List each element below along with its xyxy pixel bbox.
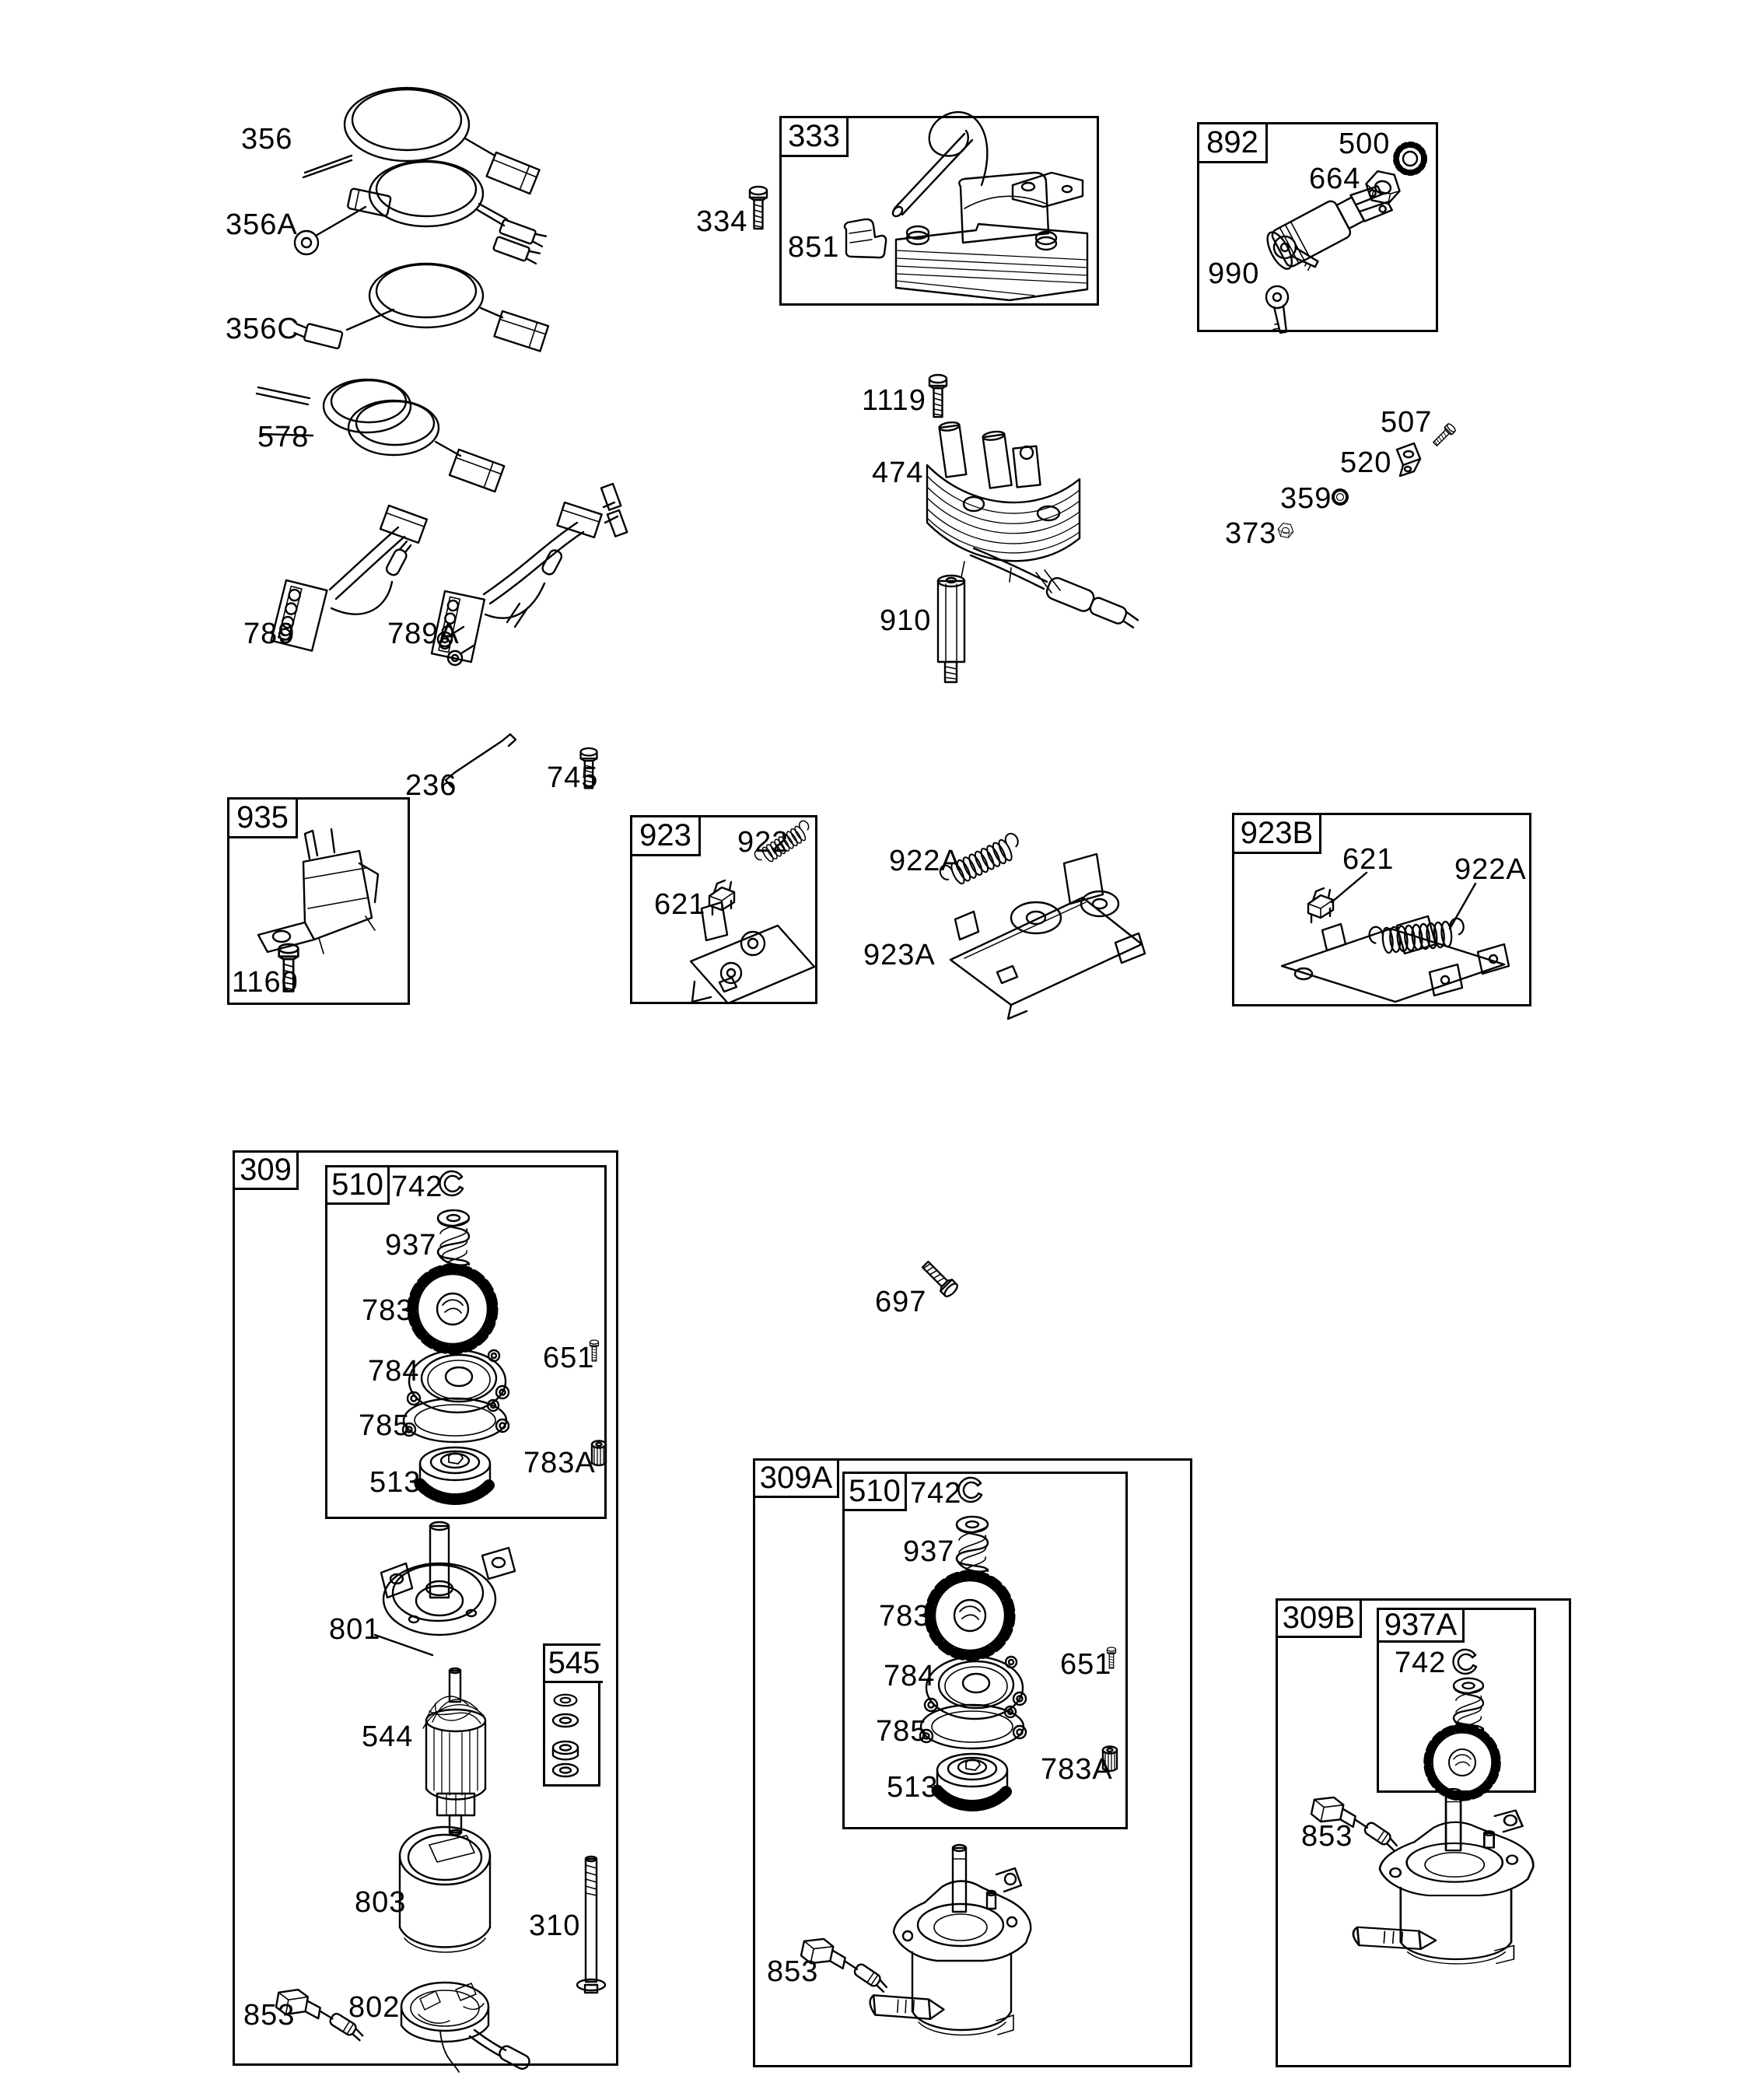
part-label-853-3: 853 — [1301, 1820, 1353, 1853]
part-label-1160: 1160 — [232, 966, 299, 999]
part-label-789: 789 — [243, 618, 295, 651]
control-bracket-art-923A — [950, 854, 1145, 1019]
wire-art-356C — [293, 264, 548, 351]
part-label-922A-b: 922A — [1454, 853, 1527, 887]
part-label-359: 359 — [1280, 482, 1332, 516]
box-title-545: 545 — [545, 1646, 603, 1683]
box-title-510: 510 — [327, 1167, 390, 1205]
part-box-892: 892 — [1197, 122, 1438, 332]
part-label-513-2: 513 — [887, 1771, 938, 1804]
part-label-664: 664 — [1309, 163, 1360, 196]
part-label-520: 520 — [1340, 446, 1391, 480]
parts-diagram-canvas: 333892935923923B309510545309A510309B937A… — [0, 0, 1750, 2100]
part-label-621a: 621 — [654, 888, 705, 922]
part-label-334: 334 — [696, 205, 747, 239]
part-label-544: 544 — [362, 1720, 413, 1754]
part-label-236: 236 — [405, 769, 457, 803]
box-title-937A: 937A — [1379, 1610, 1465, 1643]
part-label-745: 745 — [547, 761, 598, 795]
part-label-697: 697 — [875, 1286, 926, 1319]
harness-art-789A — [432, 484, 627, 665]
box-title-309: 309 — [235, 1153, 299, 1190]
part-label-783A-1: 783A — [523, 1447, 596, 1480]
switch-art-507 — [1431, 422, 1456, 447]
part-label-356C: 356C — [226, 313, 299, 346]
part-label-742-2: 742 — [910, 1477, 961, 1510]
part-label-937-2: 937 — [903, 1535, 954, 1569]
part-label-783-2: 783 — [879, 1600, 930, 1633]
part-box-545: 545 — [543, 1643, 600, 1787]
part-label-851: 851 — [788, 231, 839, 264]
part-label-922A-mid: 922A — [889, 845, 961, 878]
part-label-785-2: 785 — [876, 1715, 927, 1748]
part-label-783-1: 783 — [362, 1294, 413, 1328]
washer-art-359 — [1333, 490, 1347, 504]
part-label-801: 801 — [329, 1613, 380, 1647]
part-label-373: 373 — [1225, 517, 1276, 551]
box-title-892: 892 — [1199, 124, 1268, 163]
box-title-923B: 923B — [1234, 815, 1321, 854]
bolt-art-1119 — [929, 375, 947, 417]
bolt-art-334 — [750, 187, 767, 229]
part-box-333: 333 — [779, 116, 1099, 306]
part-label-1119: 1119 — [862, 384, 926, 418]
part-label-853-1: 853 — [243, 1999, 295, 2032]
nut-art-373 — [1277, 523, 1294, 538]
part-label-621b: 621 — [1342, 843, 1394, 877]
wire-art-356 — [303, 88, 540, 194]
part-label-474: 474 — [872, 457, 923, 490]
box-title-923: 923 — [632, 817, 701, 856]
part-label-784-2: 784 — [884, 1660, 935, 1693]
part-label-910: 910 — [880, 604, 931, 638]
part-box-937A: 937A — [1377, 1608, 1536, 1793]
box-title-935: 935 — [229, 800, 298, 838]
part-label-578: 578 — [257, 421, 309, 454]
part-box-923B: 923B — [1232, 813, 1531, 1006]
part-label-922: 922 — [737, 826, 789, 859]
part-label-990: 990 — [1208, 257, 1259, 291]
part-label-651-2: 651 — [1060, 1648, 1111, 1682]
part-label-789A: 789A — [387, 618, 460, 651]
armature-474-art — [927, 422, 1080, 582]
part-label-310: 310 — [529, 1909, 580, 1943]
stop-switch-wire-art — [971, 548, 1142, 632]
part-label-507: 507 — [1381, 406, 1432, 439]
part-label-742-1: 742 — [391, 1171, 443, 1204]
part-label-513-1: 513 — [369, 1466, 421, 1500]
part-label-923A: 923A — [863, 939, 936, 972]
part-label-500: 500 — [1339, 128, 1390, 161]
box-title-309B: 309B — [1278, 1601, 1362, 1638]
part-label-803: 803 — [355, 1886, 406, 1920]
part-label-356A: 356A — [226, 208, 298, 242]
part-label-651-1: 651 — [543, 1342, 594, 1375]
part-label-937-1: 937 — [385, 1229, 436, 1262]
part-label-785-1: 785 — [359, 1409, 410, 1443]
part-label-356: 356 — [241, 123, 292, 156]
bracket-art-520 — [1397, 443, 1420, 476]
part-label-853-2: 853 — [767, 1955, 818, 1989]
box-title-333: 333 — [782, 118, 849, 157]
part-label-783A-2: 783A — [1041, 1753, 1113, 1787]
box-title-510A: 510 — [845, 1474, 907, 1511]
part-label-784-1: 784 — [368, 1355, 419, 1388]
wire-art-356A — [295, 161, 547, 265]
part-label-742-3: 742 — [1395, 1647, 1446, 1680]
box-title-309A: 309A — [755, 1461, 839, 1498]
standoff-910-art — [938, 576, 964, 682]
part-label-802: 802 — [348, 1991, 400, 2025]
